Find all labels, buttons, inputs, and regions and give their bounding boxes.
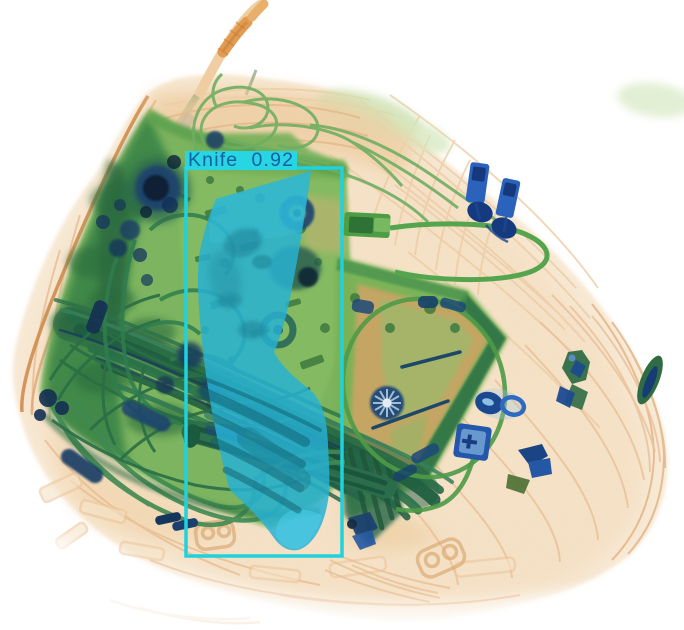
svg-text:Knife 0.92: Knife 0.92 xyxy=(188,149,293,171)
